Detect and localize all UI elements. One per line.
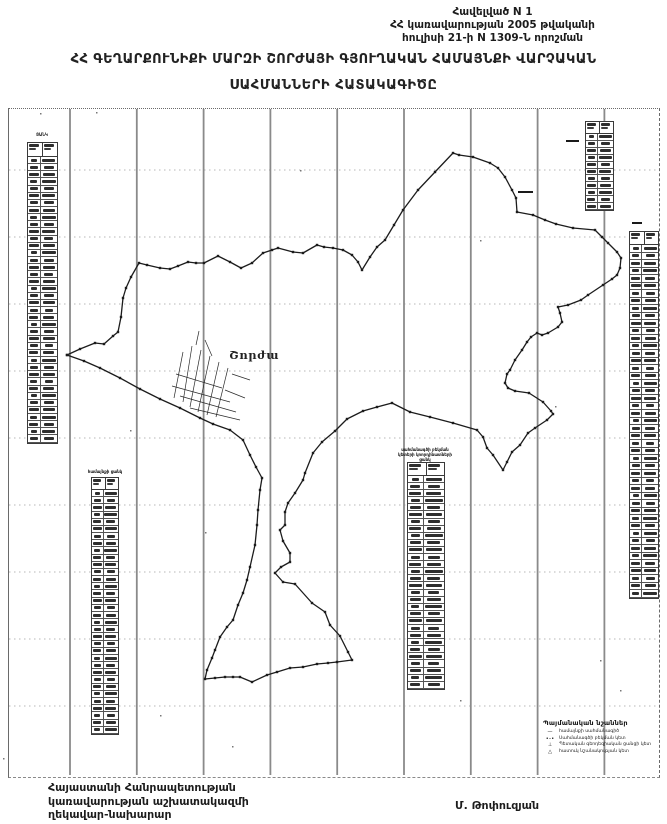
boundary-point-tick — [594, 229, 596, 231]
boundary-point-tick — [515, 197, 517, 199]
table-row — [28, 207, 57, 214]
boundary-point-tick — [486, 447, 488, 449]
table-cell — [408, 504, 424, 510]
table-cell — [104, 540, 119, 546]
table-cell — [630, 575, 642, 582]
table-row — [408, 497, 444, 504]
table-cell — [642, 545, 658, 552]
boundary-point-tick — [321, 441, 323, 443]
boundary-point-tick — [492, 454, 494, 456]
table-row — [408, 625, 444, 632]
boundary-point-tick — [489, 162, 491, 164]
table-cell — [92, 698, 104, 704]
table-cell — [586, 203, 598, 209]
table-row — [630, 365, 658, 373]
table-row — [28, 336, 57, 343]
table-cell — [92, 555, 104, 561]
table-row — [28, 364, 57, 371]
table-cell — [642, 553, 658, 560]
table-row — [92, 598, 118, 605]
table-row — [28, 200, 57, 207]
table-cell — [408, 625, 424, 631]
table-row — [408, 653, 444, 660]
table-cell — [424, 497, 444, 503]
boundary-point-tick — [240, 267, 242, 269]
table-row — [28, 300, 57, 307]
table-cell — [630, 410, 642, 417]
table-cell — [408, 611, 424, 617]
boundary-point-tick — [206, 669, 208, 671]
table-cell — [630, 253, 642, 260]
table-cell — [408, 540, 424, 546]
table-cell — [642, 568, 658, 575]
boundary-point-tick — [139, 388, 141, 390]
table-cell — [41, 271, 57, 277]
table-row — [630, 440, 658, 448]
table-cell — [28, 171, 41, 177]
table-cell — [424, 590, 444, 596]
table-cell — [424, 646, 444, 652]
boundary-point-tick — [476, 429, 478, 431]
table-cell — [630, 530, 642, 537]
table-cell — [630, 538, 642, 545]
table-cell — [424, 618, 444, 624]
boundary-point-tick — [251, 681, 253, 683]
boundary-point-tick — [122, 297, 124, 299]
table-cell — [28, 164, 41, 170]
boundary-point-tick — [229, 429, 231, 431]
table-cell — [630, 568, 642, 575]
boundary-point-tick — [324, 611, 326, 613]
table-cell — [92, 705, 104, 711]
table-cell — [41, 421, 57, 427]
table-row — [408, 604, 444, 611]
table-cell — [598, 175, 613, 181]
table-cell — [92, 662, 104, 668]
table-row — [92, 605, 118, 612]
table-cell — [408, 561, 424, 567]
table-cell — [104, 612, 119, 618]
table-cell — [630, 343, 642, 350]
table-row — [408, 533, 444, 540]
table-row — [630, 283, 658, 291]
table-cell — [408, 653, 424, 659]
table-cell — [104, 519, 119, 525]
boundary-point-tick — [376, 246, 378, 248]
table-cell — [92, 576, 104, 582]
table-row — [586, 155, 613, 162]
table-cell — [598, 134, 613, 140]
boundary-point-tick — [289, 561, 291, 563]
table-row — [28, 257, 57, 264]
table-row — [92, 633, 118, 640]
boundary-point-tick — [527, 432, 529, 434]
table-cell — [28, 428, 41, 434]
table-cell — [598, 141, 613, 147]
signature-name: Մ. Թոփուզյան — [455, 799, 539, 812]
table-cell — [104, 497, 119, 503]
table-cell — [630, 335, 642, 342]
table-cell — [408, 568, 424, 574]
table-row — [408, 504, 444, 511]
table-cell — [586, 175, 598, 181]
boundary-point-tick — [572, 227, 574, 229]
boundary-point-tick — [311, 602, 313, 604]
table-row — [92, 490, 118, 497]
boundary-point-tick — [557, 306, 559, 308]
boundary-point-tick — [224, 676, 226, 678]
table-cell — [104, 669, 119, 675]
table-cell — [104, 641, 119, 647]
table-cell — [642, 575, 658, 582]
boundary-point-tick — [580, 299, 582, 301]
table-row — [28, 321, 57, 328]
table-cell — [642, 440, 658, 447]
table-cell — [41, 236, 57, 242]
table-cell — [41, 300, 57, 306]
table-row — [408, 682, 444, 689]
table-cell — [598, 162, 613, 168]
table-cell — [586, 141, 598, 147]
table-row — [630, 538, 658, 546]
boundary-point-tick — [351, 254, 353, 256]
table-cell — [28, 278, 41, 284]
table-cell — [598, 203, 613, 209]
table-cell — [424, 490, 444, 496]
table-cell — [630, 560, 642, 567]
table-row — [92, 497, 118, 504]
boundary-point-tick — [284, 511, 286, 513]
table-row — [92, 562, 118, 569]
table-cell — [586, 162, 598, 168]
boundary-point-tick — [66, 354, 68, 356]
table-cell — [92, 504, 104, 510]
table-row — [630, 478, 658, 486]
table-row — [408, 611, 444, 618]
table-cell — [408, 590, 424, 596]
table-cell — [630, 553, 642, 560]
table-row — [28, 171, 57, 178]
table-cell — [642, 530, 658, 537]
table-cell — [104, 676, 119, 682]
table-row — [408, 547, 444, 554]
table-cell — [41, 400, 57, 406]
table-row — [408, 632, 444, 639]
table-cell — [92, 669, 104, 675]
table-cell — [92, 633, 104, 639]
table-cell — [408, 490, 424, 496]
boundary-point-tick — [120, 316, 122, 318]
boundary-point-tick — [482, 436, 484, 438]
table-row — [408, 511, 444, 518]
table-header-cell — [645, 232, 659, 244]
table-cell — [92, 641, 104, 647]
table-row — [630, 275, 658, 283]
table-row — [28, 193, 57, 200]
boundary-point-tick — [458, 154, 460, 156]
boundary-point-tick — [284, 524, 286, 526]
table-cell — [642, 358, 658, 365]
table-row — [408, 519, 444, 526]
table-cell — [92, 720, 104, 726]
table-header-cell — [586, 122, 600, 133]
table-row — [92, 691, 118, 698]
table-cell — [92, 712, 104, 718]
table-cell — [642, 463, 658, 470]
table-row — [408, 526, 444, 533]
table-row — [630, 403, 658, 411]
table-row — [586, 141, 613, 148]
table-row — [92, 626, 118, 633]
table-cell — [586, 169, 598, 175]
table-row — [92, 519, 118, 526]
table-cell — [104, 648, 119, 654]
table-row — [630, 373, 658, 381]
table-cell — [642, 313, 658, 320]
table-row — [408, 646, 444, 653]
table-row — [92, 533, 118, 540]
table-cell — [630, 245, 642, 252]
table-row — [586, 203, 613, 210]
table-cell — [41, 428, 57, 434]
boundary-point-tick — [249, 454, 251, 456]
table-cell — [642, 410, 658, 417]
boundary-point-tick — [212, 423, 214, 425]
table-cell — [28, 371, 41, 377]
table-cell — [642, 418, 658, 425]
table-row — [586, 175, 613, 182]
table-row — [28, 157, 57, 164]
table-cell — [41, 178, 57, 184]
table-cell — [642, 500, 658, 507]
table-cell — [41, 243, 57, 249]
table-cell — [28, 386, 41, 392]
table-cell — [630, 313, 642, 320]
boundary-point-tick — [242, 439, 244, 441]
table-cell — [104, 504, 119, 510]
legend-item: △հատուկ նշանակության կետ — [543, 749, 655, 756]
table-row — [92, 705, 118, 712]
table-cell — [586, 196, 598, 202]
right-long-table — [629, 231, 659, 599]
table-cell — [642, 493, 658, 500]
boundary-point-tick — [179, 407, 181, 409]
table-cell — [28, 307, 41, 313]
table-cell — [642, 590, 658, 597]
table-cell — [424, 547, 444, 553]
table-row — [630, 470, 658, 478]
boundary-point-tick — [204, 678, 206, 680]
boundary-point-tick — [279, 529, 281, 531]
boundary-point-tick — [342, 249, 344, 251]
boundary-point-tick — [391, 402, 393, 404]
table-cell — [28, 414, 41, 420]
table-cell — [630, 433, 642, 440]
scan-speck — [205, 532, 207, 534]
boundary-point-tick — [369, 256, 371, 258]
table-cell — [104, 562, 119, 568]
table-cell — [424, 476, 444, 482]
table-row — [92, 547, 118, 554]
table-cell — [642, 380, 658, 387]
table-cell — [630, 388, 642, 395]
table-cell — [41, 171, 57, 177]
table-cell — [104, 576, 119, 582]
boundary-point-tick — [103, 343, 105, 345]
table-cell — [28, 207, 41, 213]
issuer-block: Հայաստանի Հանրապետության կառավարության ա… — [48, 781, 249, 822]
table-cell — [28, 257, 41, 263]
boundary-point-tick — [542, 401, 544, 403]
boundary-point-tick — [294, 492, 296, 494]
table-cell — [28, 393, 41, 399]
boundary-point-tick — [559, 312, 561, 314]
boundary-point-tick — [177, 265, 179, 267]
table-row — [630, 313, 658, 321]
table-cell — [630, 418, 642, 425]
table-header-cell — [43, 143, 57, 156]
table-row — [586, 189, 613, 196]
table-cell — [28, 157, 41, 163]
table-row — [630, 493, 658, 501]
table-row — [28, 307, 57, 314]
table-cell — [104, 712, 119, 718]
boundary-point-tick — [329, 624, 331, 626]
table-cell — [92, 598, 104, 604]
table-cell — [104, 490, 119, 496]
table-row — [28, 228, 57, 235]
table-cell — [408, 554, 424, 560]
table-cell — [104, 684, 119, 690]
boundary-point-tick — [516, 211, 518, 213]
scan-speck — [620, 690, 622, 692]
table-cell — [28, 300, 41, 306]
table-cell — [630, 463, 642, 470]
table-cell — [92, 533, 104, 539]
table-cell — [92, 540, 104, 546]
table-cell — [408, 660, 424, 666]
boundary-point-tick — [256, 524, 258, 526]
table-cell — [424, 675, 444, 681]
boundary-point-tick — [509, 369, 511, 371]
table-cell — [424, 575, 444, 581]
table-row — [92, 698, 118, 705]
table-cell — [104, 626, 119, 632]
settlement-street-line — [190, 408, 240, 420]
table-cell — [408, 675, 424, 681]
table-cell — [104, 655, 119, 661]
boundary-point-tick — [506, 373, 508, 375]
table-row — [28, 293, 57, 300]
table-cell — [642, 373, 658, 380]
table-cell — [408, 575, 424, 581]
table-header — [92, 478, 118, 490]
table-cell — [630, 470, 642, 477]
table-row — [92, 526, 118, 533]
table-cell — [92, 655, 104, 661]
map-legend: Պայմանական նշաններ —համայնքի սահմանագիծ•… — [543, 719, 655, 755]
table-cell — [92, 626, 104, 632]
table-cell — [28, 264, 41, 270]
scan-speck — [555, 406, 557, 408]
table-cell — [642, 253, 658, 260]
table-cell — [630, 455, 642, 462]
table-row — [28, 264, 57, 271]
boundary-point-tick — [557, 326, 559, 328]
table-cell — [92, 605, 104, 611]
table-cell — [41, 278, 57, 284]
issuer-line: կառավարության աշխատակազմի — [48, 795, 249, 809]
table-cell — [586, 189, 598, 195]
left-lower-table-caption: համայնքի ցանկ — [82, 469, 128, 474]
boundary-point-tick — [362, 410, 364, 412]
table-cell — [630, 328, 642, 335]
scan-speck — [130, 430, 132, 432]
table-cell — [598, 189, 613, 195]
boundary-point-tick — [203, 262, 205, 264]
tiny-annotation-mark — [566, 140, 579, 142]
table-cell — [630, 373, 642, 380]
table-cell — [424, 568, 444, 574]
boundary-point-tick — [316, 244, 318, 246]
legend-items: —համայնքի սահմանագիծ•–•Սահմանագծի բեկման… — [543, 729, 655, 755]
table-cell — [28, 314, 41, 320]
table-row — [586, 196, 613, 203]
table-cell — [41, 186, 57, 192]
table-cell — [41, 343, 57, 349]
boundary-point-tick — [312, 452, 314, 454]
boundary-point-tick — [287, 502, 289, 504]
boundary-point-tick — [211, 657, 213, 659]
table-row — [630, 455, 658, 463]
boundary-point-tick — [277, 247, 279, 249]
table-cell — [642, 350, 658, 357]
table-cell — [642, 403, 658, 410]
boundary-point-tick — [532, 214, 534, 216]
scanned-boundary-plan-page: { "header": { "appendix_lines": [ "Հավել… — [0, 0, 667, 824]
boundary-point-tick — [159, 267, 161, 269]
table-cell — [41, 364, 57, 370]
table-cell — [41, 250, 57, 256]
table-cell — [28, 236, 41, 242]
table-cell — [630, 395, 642, 402]
table-cell — [424, 526, 444, 532]
table-cell — [28, 321, 41, 327]
table-cell — [104, 691, 119, 697]
table-row — [630, 298, 658, 306]
boundary-point-tick — [83, 360, 85, 362]
boundary-point-tick — [282, 581, 284, 583]
table-cell — [630, 350, 642, 357]
table-row — [630, 410, 658, 418]
table-cell — [424, 511, 444, 517]
table-cell — [642, 268, 658, 275]
table-row — [408, 540, 444, 547]
table-cell — [630, 440, 642, 447]
table-cell — [92, 590, 104, 596]
table-header-cell — [408, 463, 427, 475]
table-cell — [41, 336, 57, 342]
boundary-point-tick — [242, 592, 244, 594]
table-row — [630, 260, 658, 268]
left-upper-table — [27, 142, 58, 444]
settlement-street-line — [196, 331, 199, 345]
boundary-point-tick — [266, 674, 268, 676]
table-row — [408, 668, 444, 675]
table-row — [630, 575, 658, 583]
table-cell — [104, 633, 119, 639]
boundary-point-tick — [294, 583, 296, 585]
